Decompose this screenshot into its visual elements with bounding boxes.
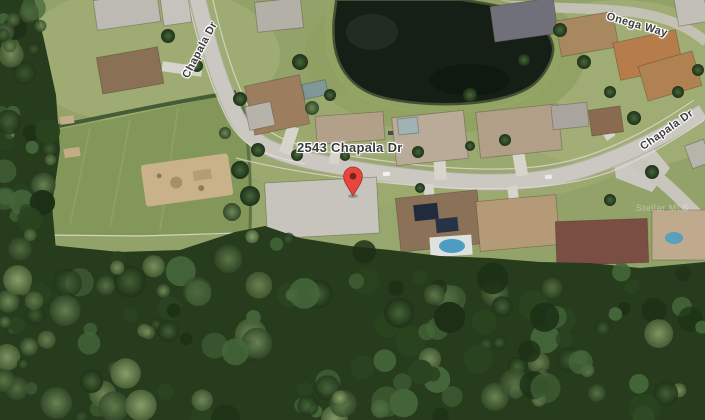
address-label: 2543 Chapala Dr [297,140,403,155]
aerial-imagery [0,0,705,420]
location-pin-icon[interactable] [339,163,367,199]
watermark: Stellar MLS [636,203,689,213]
satellite-map[interactable]: Chapala Dr Onega Way Chapala Dr 2543 Cha… [0,0,705,420]
